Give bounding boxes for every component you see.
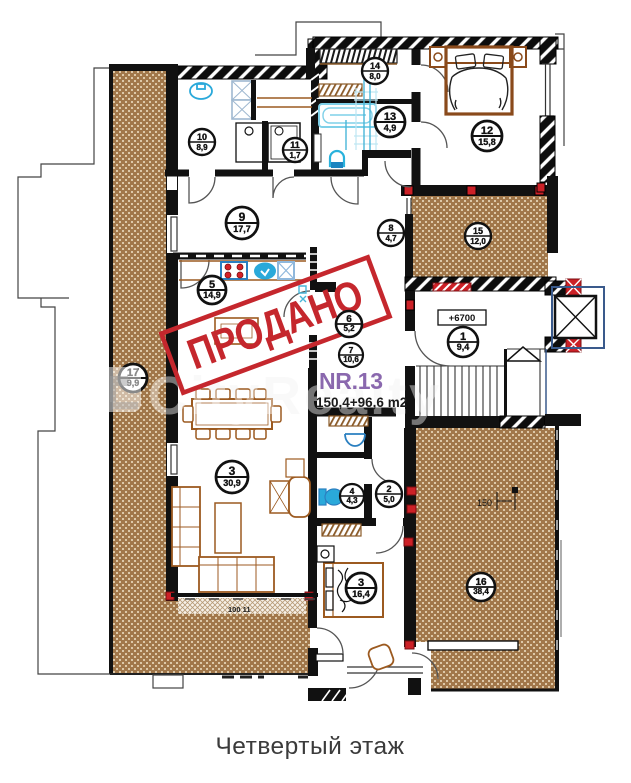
svg-text:100 11: 100 11 [228, 605, 251, 614]
svg-text:4,7: 4,7 [385, 234, 397, 243]
svg-text:5,0: 5,0 [383, 495, 395, 504]
svg-text:16,4: 16,4 [352, 589, 370, 599]
svg-text:12: 12 [481, 125, 493, 137]
svg-text:9: 9 [239, 210, 246, 224]
svg-text:12,0: 12,0 [470, 237, 486, 246]
svg-text:14: 14 [370, 61, 380, 71]
svg-text:4,9: 4,9 [384, 123, 397, 133]
svg-text:4,3: 4,3 [346, 496, 358, 505]
svg-text:3: 3 [229, 464, 236, 478]
svg-text:15,8: 15,8 [478, 137, 496, 147]
svg-text:3: 3 [358, 577, 364, 589]
svg-text:NR.13: NR.13 [319, 368, 383, 394]
svg-text:150,4+96,6 m2: 150,4+96,6 m2 [316, 395, 407, 410]
svg-text:7: 7 [349, 345, 354, 355]
svg-text:5,2: 5,2 [343, 324, 355, 333]
svg-text:15: 15 [473, 226, 483, 236]
svg-text:38,4: 38,4 [473, 587, 489, 596]
svg-text:9,4: 9,4 [457, 342, 470, 352]
svg-text:8,0: 8,0 [369, 72, 381, 81]
svg-text:8: 8 [388, 223, 393, 233]
svg-text:2: 2 [386, 484, 391, 494]
svg-text:150: 150 [477, 498, 492, 508]
svg-text:14,9: 14,9 [203, 290, 221, 300]
svg-text:11: 11 [290, 140, 300, 150]
svg-text:10: 10 [197, 132, 207, 142]
svg-text:13: 13 [384, 111, 396, 123]
svg-text:+6700: +6700 [449, 313, 476, 324]
svg-text:17,7: 17,7 [233, 224, 251, 234]
svg-text:1,7: 1,7 [289, 151, 301, 160]
svg-text:Четвертый этаж: Четвертый этаж [215, 733, 404, 760]
svg-text:4: 4 [350, 486, 355, 496]
svg-text:10,6: 10,6 [343, 355, 359, 364]
svg-text:30,9: 30,9 [223, 478, 241, 488]
svg-text:8,9: 8,9 [196, 143, 208, 152]
